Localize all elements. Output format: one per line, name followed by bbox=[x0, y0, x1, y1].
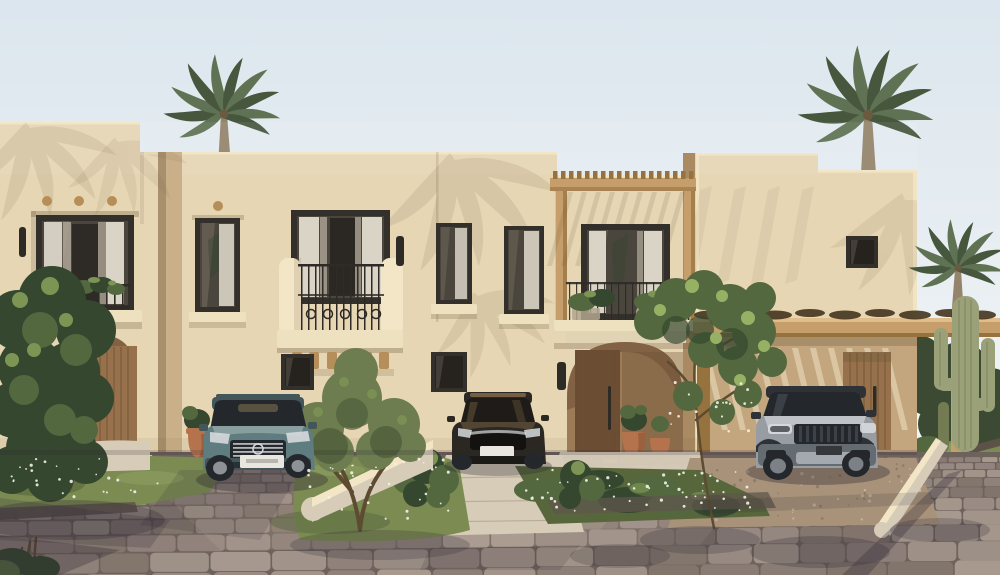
narrow-window-mid-a bbox=[431, 223, 477, 319]
small-window-right bbox=[431, 352, 467, 392]
narrow-window-mid-b bbox=[499, 226, 549, 329]
side-mirror bbox=[308, 422, 317, 429]
license-plate bbox=[816, 446, 842, 455]
narrow-window-house2 bbox=[189, 215, 246, 328]
timber-dot bbox=[74, 196, 84, 206]
small-window-house4 bbox=[846, 236, 878, 268]
side-mirror bbox=[447, 416, 455, 422]
side-mirror bbox=[866, 410, 876, 417]
headlight bbox=[860, 423, 876, 433]
wheel bbox=[452, 454, 472, 470]
side-mirror bbox=[541, 415, 549, 421]
timber-dot bbox=[107, 196, 117, 206]
wall-sconce bbox=[396, 236, 404, 266]
render-canvas: Sunny 3D architectural render of a row o… bbox=[0, 0, 1000, 575]
small-window-left bbox=[281, 354, 314, 390]
headlight bbox=[210, 432, 230, 444]
headlight bbox=[286, 431, 310, 443]
wheel bbox=[524, 453, 544, 469]
wood-door-house3 bbox=[575, 350, 620, 456]
architectural-render: Sunny 3D architectural render of a row o… bbox=[0, 0, 1000, 575]
timber-dot bbox=[213, 201, 223, 211]
wall-sconce bbox=[557, 362, 566, 390]
arched-entrance-house3 bbox=[557, 342, 694, 466]
side-mirror bbox=[751, 412, 761, 419]
side-mirror bbox=[199, 424, 208, 431]
timber-dot bbox=[42, 196, 52, 206]
door-handle bbox=[608, 386, 611, 430]
balcony-window-house2 bbox=[291, 210, 390, 304]
wall-sconce bbox=[19, 227, 26, 257]
roof-highlight bbox=[470, 393, 526, 397]
